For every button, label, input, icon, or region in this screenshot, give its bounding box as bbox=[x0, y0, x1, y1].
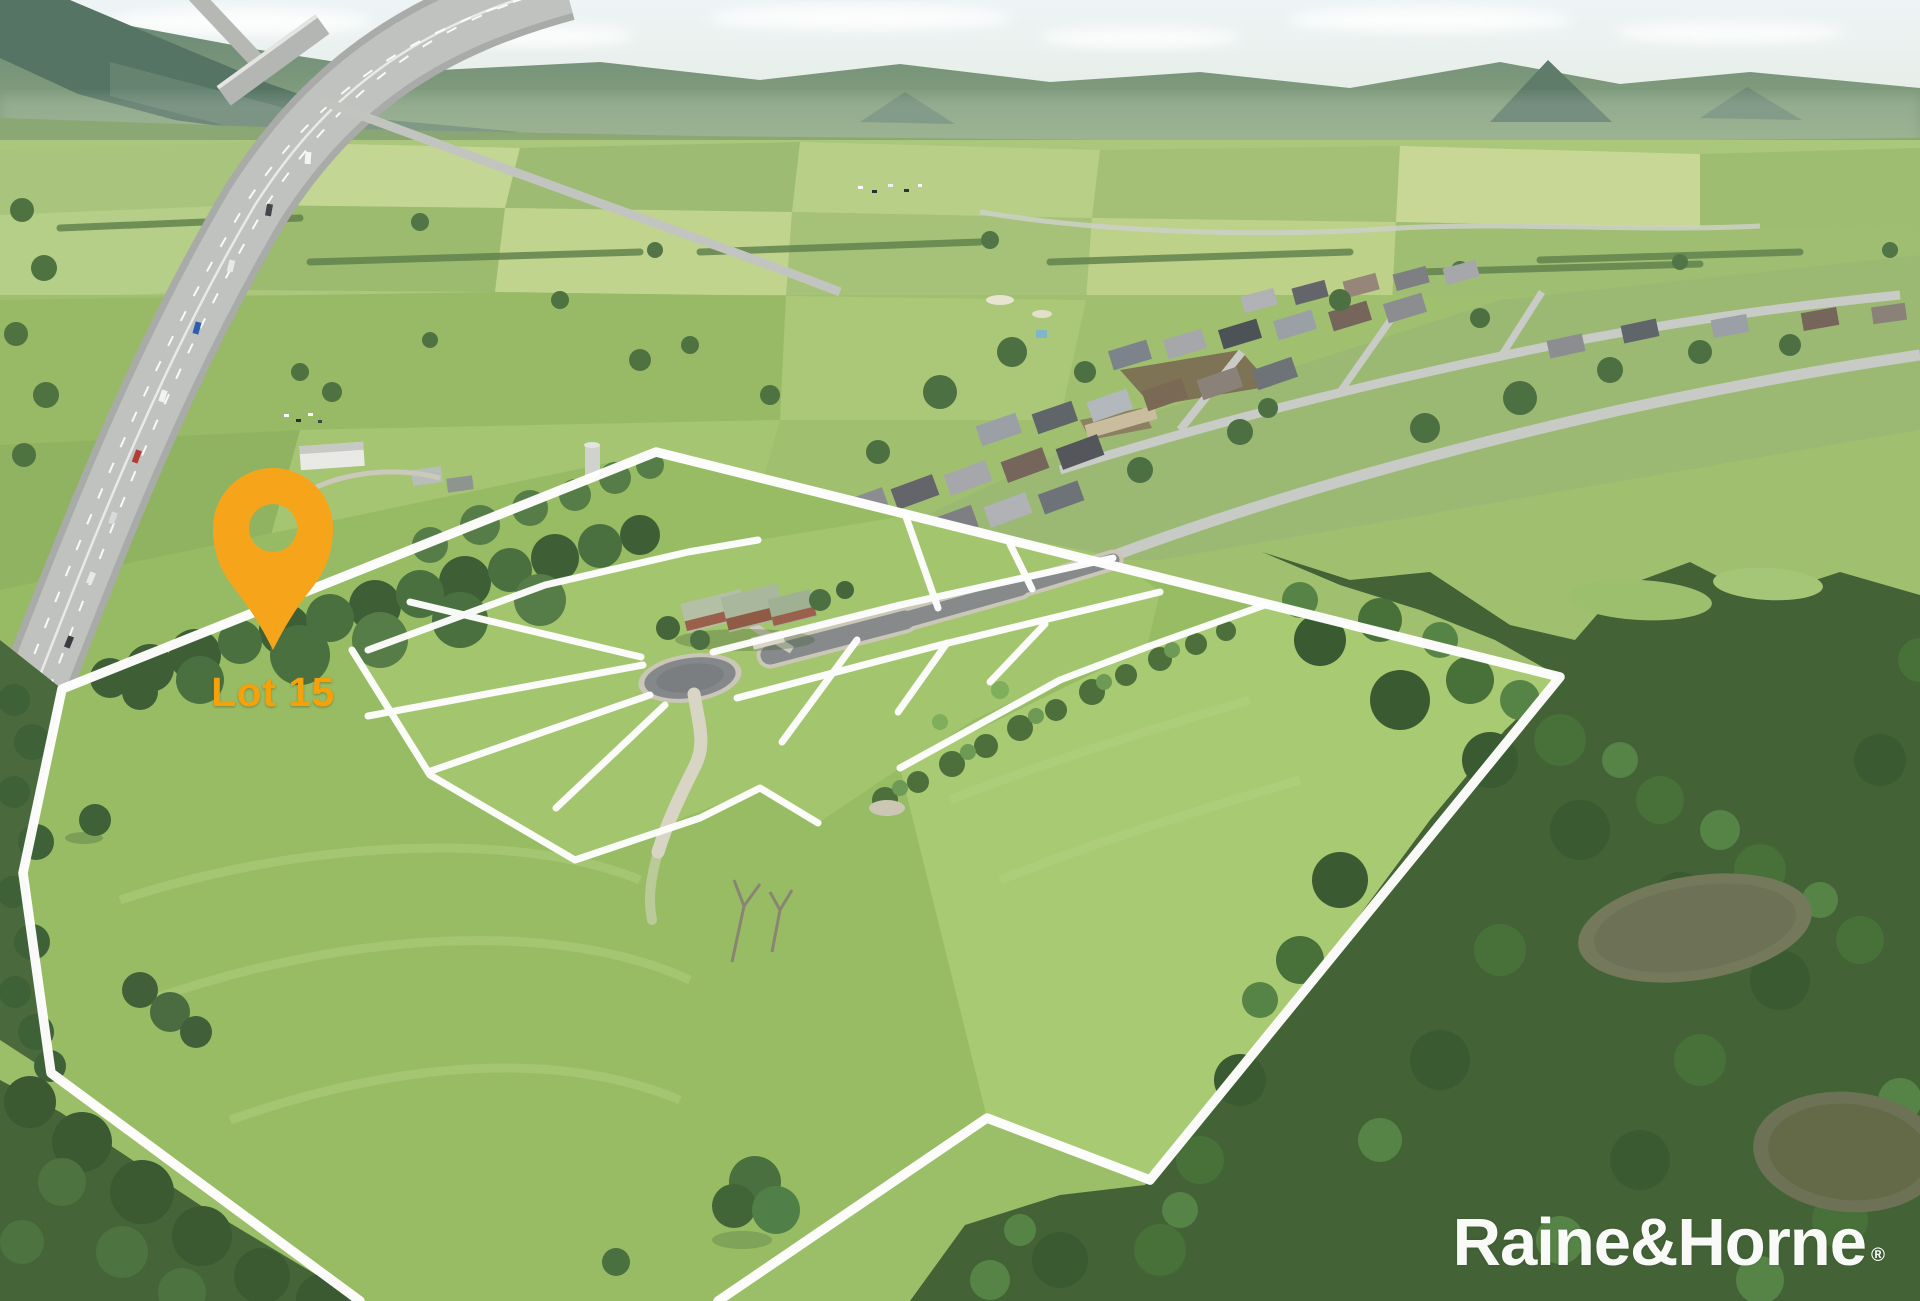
brand-logo-text: Raine&Horne bbox=[1453, 1205, 1866, 1280]
aerial-photo-canvas bbox=[0, 0, 1920, 1301]
brand-logo: Raine&Horne® bbox=[1453, 1204, 1880, 1281]
registered-trademark-symbol: ® bbox=[1871, 1245, 1885, 1266]
aerial-property-photo: Lot 15 Raine&Horne® bbox=[0, 0, 1920, 1301]
lot-label: Lot 15 bbox=[211, 669, 335, 716]
